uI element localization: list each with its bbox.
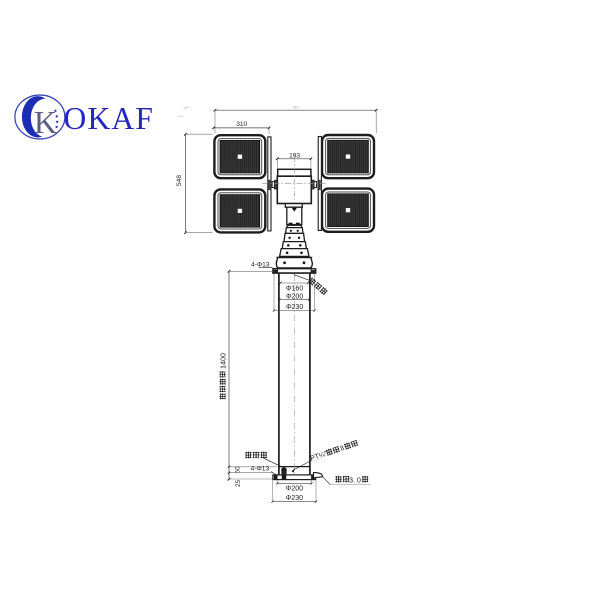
svg-text:1400: 1400 xyxy=(218,353,227,369)
svg-text:310: 310 xyxy=(236,121,247,128)
svg-text:K: K xyxy=(34,104,57,140)
svg-text:Φ200: Φ200 xyxy=(286,486,303,493)
svg-text:548: 548 xyxy=(176,175,183,186)
svg-text:193: 193 xyxy=(289,152,300,159)
svg-text:910: 910 xyxy=(293,106,299,110)
svg-text:4-Φ13: 4-Φ13 xyxy=(251,466,270,473)
svg-text:Φ230: Φ230 xyxy=(286,495,303,502)
svg-text:Φ230: Φ230 xyxy=(286,304,303,311)
svg-text:OKAF: OKAF xyxy=(64,101,155,136)
svg-text:50: 50 xyxy=(234,466,241,474)
svg-text:Φ160: Φ160 xyxy=(286,286,303,293)
svg-text:3. 0: 3. 0 xyxy=(349,477,361,484)
svg-text:25: 25 xyxy=(235,479,242,487)
